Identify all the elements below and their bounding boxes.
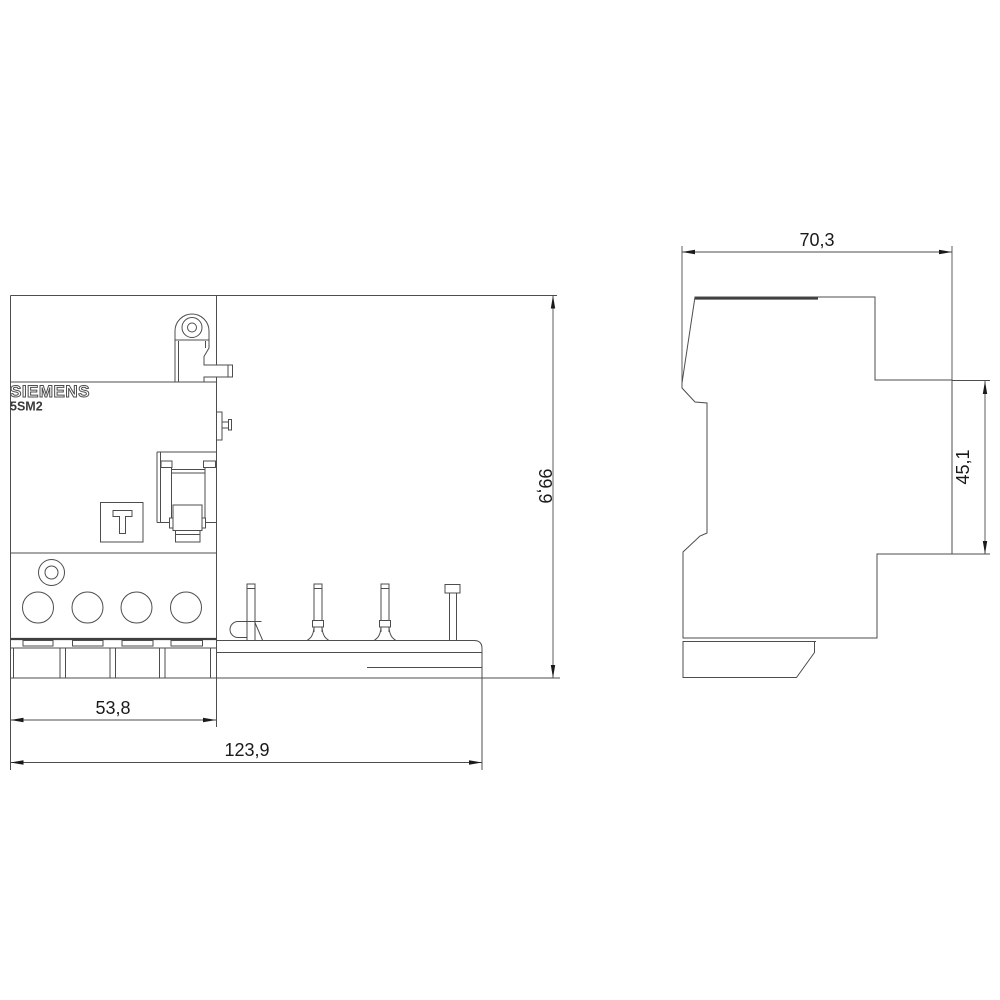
busbar-pin-3 (375, 584, 396, 640)
front-view: SIEMENS 5SM2 (10, 296, 560, 771)
screw-inner (45, 566, 58, 579)
terminal-hole-2 (72, 592, 103, 623)
busbar-pin-2 (308, 584, 329, 640)
pin-flare-left (375, 627, 382, 640)
pin-cap (445, 585, 460, 594)
side-pin-stem (222, 422, 229, 428)
toggle-tab-left (161, 461, 172, 468)
dim-label-side-body-height: 45,1 (953, 449, 973, 484)
arrow-up (983, 381, 987, 394)
arrow-right (469, 760, 482, 764)
dim-label-front-height: 99,9 (535, 468, 555, 503)
toggle-clip-left (170, 518, 174, 528)
side-view (682, 297, 990, 678)
arrow-left (11, 760, 24, 764)
side-pin-bracket (217, 412, 232, 440)
brand-label: SIEMENS (10, 382, 90, 401)
pin-collar (380, 621, 391, 628)
pin-hook (230, 622, 262, 638)
test-button: T (101, 503, 144, 543)
terminal-hole-4 (171, 592, 202, 623)
pin-flare-left (308, 627, 315, 640)
terminal-holes (23, 592, 202, 623)
pin-flare-right (322, 627, 329, 640)
arrow-right (939, 250, 952, 254)
toggle-clip-right (202, 518, 206, 528)
mounting-hole-inner (188, 323, 197, 332)
arrow-right (203, 718, 216, 722)
terminal-slot-4 (171, 641, 203, 647)
arrow-down (551, 665, 555, 678)
dimension-side-body-height: 45,1 (953, 381, 987, 554)
pin-body (247, 584, 255, 640)
dimension-module-width: 53,8 (11, 698, 217, 722)
terminal-blocks (14, 641, 211, 679)
model-label: 5SM2 (10, 400, 43, 414)
arrow-up (551, 296, 555, 309)
toggle-knob-lower (176, 531, 201, 543)
arrow-left (11, 718, 24, 722)
side-pin-base (217, 412, 223, 440)
mounting-tab (175, 314, 233, 382)
sealing-screw (39, 560, 65, 586)
pin-collar (313, 621, 324, 628)
busbar-pin-1 (230, 584, 263, 640)
terminal-hole-1 (23, 592, 54, 623)
rail-top-edge (217, 641, 483, 649)
dim-label-module-width: 53,8 (95, 698, 130, 718)
pin-hook-wedge (255, 622, 263, 641)
busbar-pin-4 (445, 585, 460, 641)
dim-label-total-width: 123,9 (224, 740, 269, 760)
side-profile-outline (682, 297, 952, 638)
terminal-hole-3 (121, 592, 152, 623)
terminal-slot-1 (23, 641, 53, 647)
dimension-total-width: 123,9 (11, 740, 483, 765)
pin-flare-right (389, 627, 396, 640)
front-module-outline (11, 296, 561, 771)
toggle-knob (173, 505, 202, 531)
din-rail-block (683, 642, 815, 678)
side-pin-cap (229, 420, 232, 431)
arrow-down (983, 541, 987, 554)
terminal-slot-2 (73, 641, 104, 647)
toggle-switch (157, 452, 217, 542)
dimension-drawing: SIEMENS 5SM2 (0, 0, 1000, 1000)
dimension-front-height: 99,9 (535, 296, 555, 679)
dim-label-side-width: 70,3 (799, 230, 834, 250)
terminal-slot-3 (122, 641, 153, 647)
toggle-tab-right (204, 461, 216, 468)
arrow-left (682, 250, 695, 254)
